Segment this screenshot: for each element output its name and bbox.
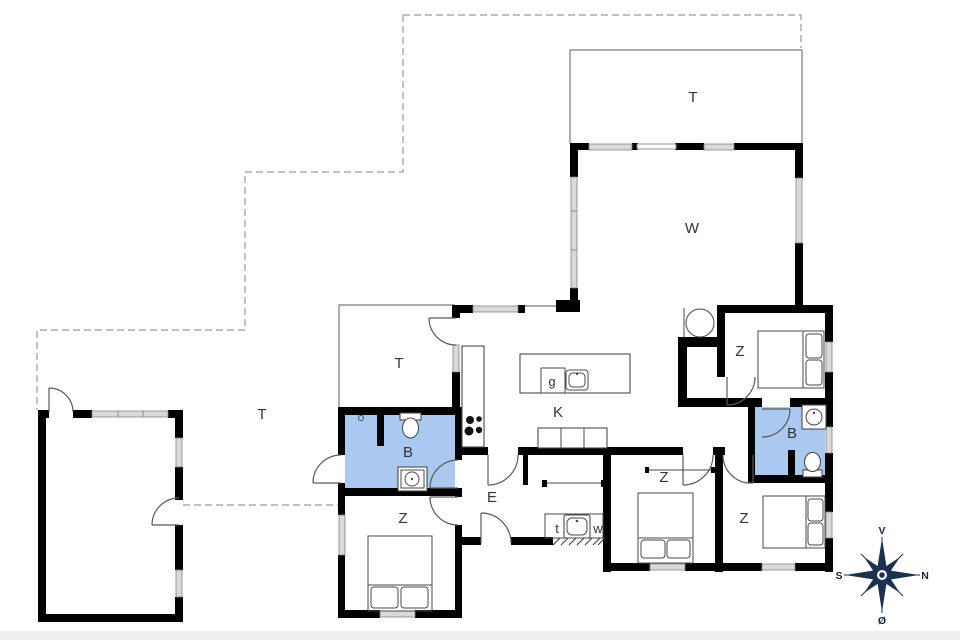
terrace-sliding-door [637,144,676,149]
dining-bench [538,428,607,448]
compass-south-label: S [835,570,842,582]
label-terrace-north: T [688,89,697,106]
label-kitchen: K [553,404,563,421]
compass-rose: V N S Ø [835,525,928,627]
bed-icon [368,536,432,611]
label-terrace-small: T [394,355,403,372]
wood-stove-icon [684,308,714,338]
garage-windows [92,411,182,597]
compass-east-label: Ø [878,615,886,627]
utility-fixtures [542,467,715,545]
garage [38,388,183,622]
label-tech-room: t [555,521,559,536]
label-entrance: E [487,489,497,506]
label-bedroom-sw: Z [398,510,407,527]
label-utility-room: w [592,521,603,536]
label-bathroom-east: B [787,425,797,442]
bath-west-exterior-door [313,455,341,483]
label-bathroom-west: B [403,444,413,461]
page-bottom-margin [0,631,960,640]
toilet-icon [803,453,822,478]
label-island-cabinet: g [548,374,555,389]
closet-rail [645,467,715,473]
bed-icon [638,493,693,563]
bedroom-sw-door [430,497,458,525]
vent-hatch [553,538,605,545]
kitchen-fixtures [462,308,714,448]
compass-north-label: N [921,570,929,582]
label-bedroom-s: Z [659,469,668,486]
label-bedroom-ne: Z [735,343,744,360]
garage-east-door [152,498,179,525]
utility-sink-icon [564,515,590,538]
terrace-north-outline [570,50,802,143]
bed-icon [758,331,824,388]
sink-icon [802,405,826,429]
washing-machine-icon [398,467,427,491]
terrace-door [429,318,456,345]
bed-icon [763,496,825,548]
kitchen-hall-door [488,455,518,485]
compass-west-label: V [878,525,885,537]
garage-north-door [49,388,73,412]
entrance-door [481,513,511,543]
label-bedroom-se: Z [739,510,748,527]
floorplan-drawing: T T T W K E B B Z Z Z Z g t w V N S Ø [0,0,960,640]
label-living-room: W [685,220,700,237]
floorplan-page: T T T W K E B B Z Z Z Z g t w V N S Ø [0,0,960,640]
label-terrace-west: T [257,406,266,423]
